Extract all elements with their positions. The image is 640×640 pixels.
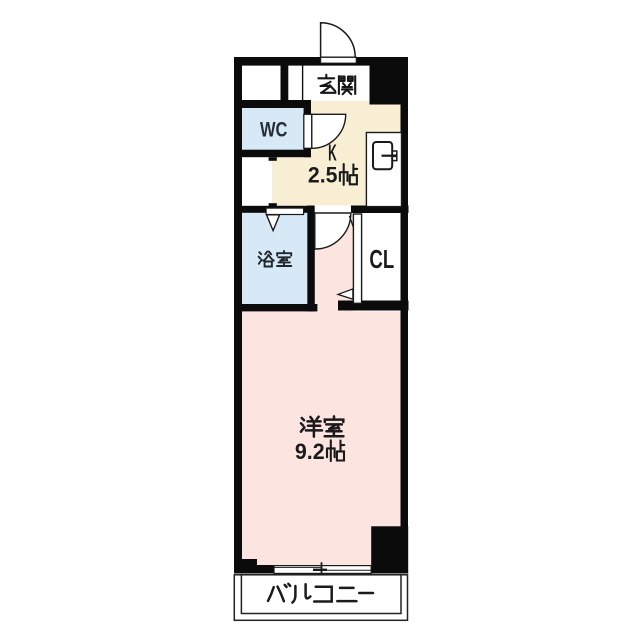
svg-text:K: K: [328, 139, 337, 165]
svg-text:9.2: 9.2: [295, 439, 325, 464]
svg-text:2.5: 2.5: [308, 163, 338, 188]
svg-text:WC: WC: [260, 118, 287, 142]
svg-text:CL: CL: [369, 244, 394, 274]
